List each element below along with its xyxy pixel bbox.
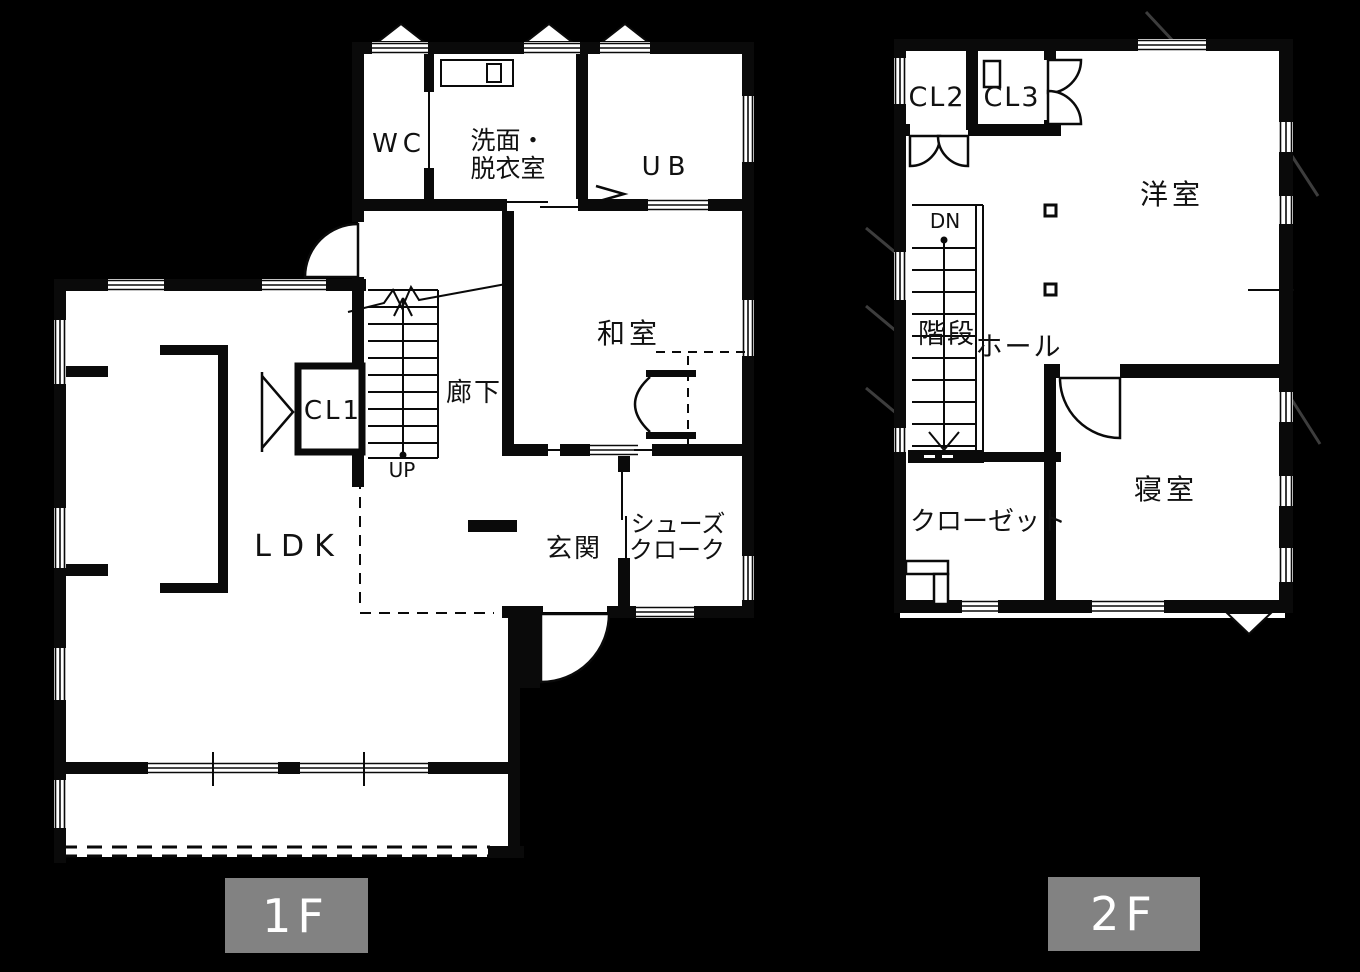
room-label-washroom-line2: 脱衣室 [470,154,545,183]
room-label-wc: WC [372,129,426,159]
room-label-ldk: LDK [254,529,344,564]
room-label-washroom-line1: 洗面・ [470,126,545,155]
room-label-cl3: CL3 [983,82,1040,113]
room-label-hall: ホール [976,332,1063,363]
floor1-vent-triangles [378,24,648,42]
stair-dn-label: DN [930,209,960,233]
washstand-counter [441,60,513,86]
room-label-washitsu: 和室 [597,317,661,350]
stair-up-label: UP [389,458,416,482]
floor-badges: 1F 2F [225,877,1200,953]
room-label-shoecloak-line1: シューズ [631,510,726,538]
corridor-door-swing [305,224,358,277]
room-label-cl2: CL2 [908,82,965,113]
floor2-plan: CL2 CL3 洋室 DN 階段 ホール 寝室 クローゼット [866,12,1320,634]
room-label-shinshitsu: 寝室 [1134,473,1198,506]
floor1-plan: WC 洗面・ 脱衣室 UB 和室 廊下 CL1 UP LDK 玄関 シューズ ク… [54,24,754,863]
room-label-cl1: CL1 [304,396,362,426]
room-label-corridor: 廊下 [446,378,502,408]
room-label-shoecloak-line2: クローク [629,536,725,564]
floor2-badge-label: 2F [1090,887,1158,941]
room-label-kaidan: 階段 [918,319,976,350]
pillar-mark-2 [1045,284,1056,295]
pillar-mark-1 [1045,205,1056,216]
floor-plan-canvas: WC 洗面・ 脱衣室 UB 和室 廊下 CL1 UP LDK 玄関 シューズ ク… [0,0,1360,972]
closet-corner-fixture-v [934,574,948,604]
room-label-ub: UB [642,152,693,182]
room-label-youshitsu: 洋室 [1140,178,1204,211]
room-label-closet: クローゼット [910,507,1066,537]
room-label-genkan: 玄関 [546,534,602,564]
floor1-badge-label: 1F [262,889,330,943]
entrance-door-swing [541,614,609,682]
floor2-vent-triangle [1227,613,1271,634]
floorplan-screenshot: WC 洗面・ 脱衣室 UB 和室 廊下 CL1 UP LDK 玄関 シューズ ク… [0,0,1360,972]
closet-corner-fixture-h [906,561,948,574]
